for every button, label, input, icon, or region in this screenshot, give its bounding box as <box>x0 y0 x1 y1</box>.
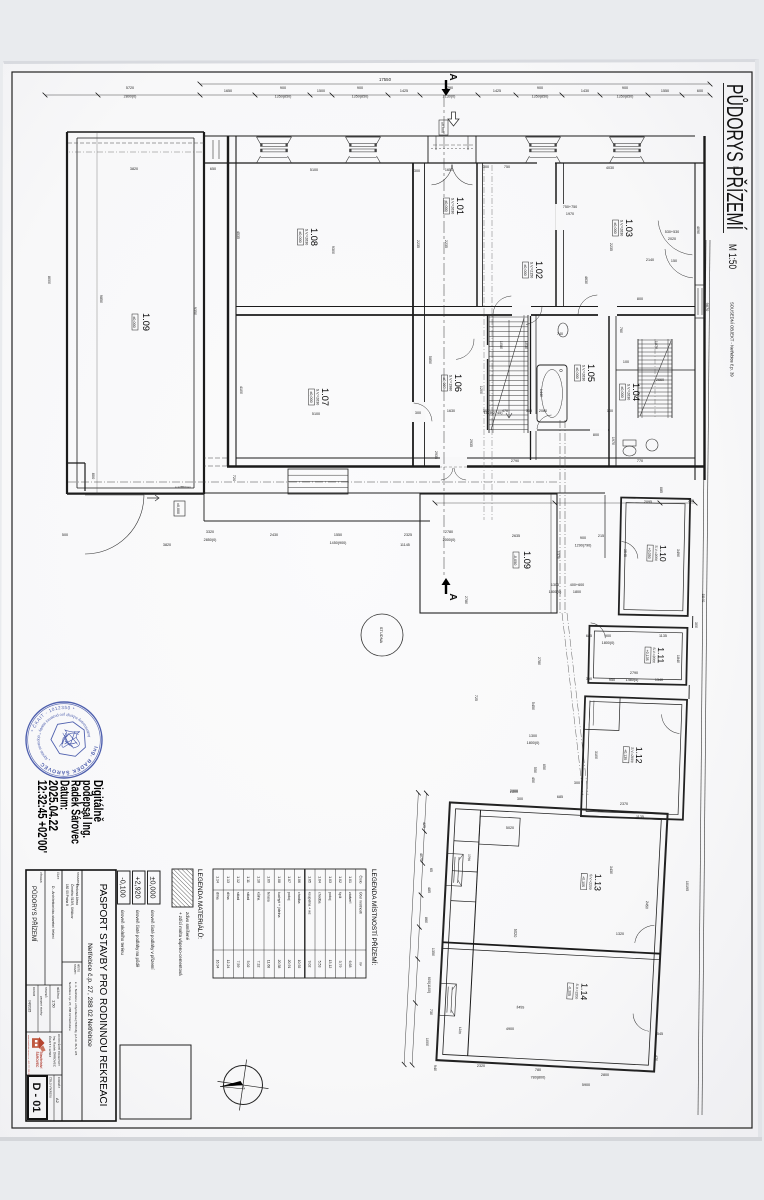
svg-text:kuchyň + jídelna: kuchyň + jídelna <box>277 892 281 917</box>
svg-text:900: 900 <box>280 86 286 90</box>
svg-text:koupelna + wc: koupelna + wc <box>307 892 311 915</box>
svg-text:±0,000: ±0,000 <box>620 386 624 398</box>
svg-text:3820: 3820 <box>130 167 138 171</box>
svg-text:S.V.=2000: S.V.=2000 <box>654 545 658 561</box>
svg-text:1.12: 1.12 <box>236 876 240 883</box>
svg-text:1030: 1030 <box>524 341 528 349</box>
svg-text:±0,000: ±0,000 <box>444 200 448 212</box>
svg-text:600(1100): 600(1100) <box>427 977 431 994</box>
svg-text:1350(850): 1350(850) <box>275 95 292 99</box>
svg-text:-0,105: -0,105 <box>567 986 572 996</box>
svg-text:3490: 3490 <box>676 549 680 557</box>
svg-text:740: 740 <box>557 332 563 336</box>
svg-text:1650: 1650 <box>224 89 232 93</box>
svg-text:7,32: 7,32 <box>256 961 260 968</box>
svg-text:6,68: 6,68 <box>348 961 352 968</box>
svg-text:350: 350 <box>526 409 532 413</box>
svg-text:Černého 515/9, Střížkov: Černého 515/9, Střížkov <box>70 884 75 919</box>
svg-text:4900: 4900 <box>506 1027 514 1031</box>
svg-text:450: 450 <box>531 777 535 783</box>
svg-text:+ zdící malta vápeno-cementová: + zdící malta vápeno-cementová <box>178 912 183 976</box>
svg-text:1.12: 1.12 <box>634 747 645 764</box>
svg-text:1.02: 1.02 <box>534 261 544 279</box>
svg-text:1.03: 1.03 <box>624 219 634 237</box>
svg-text:PŮDORYS PŘÍZEMÍ: PŮDORYS PŘÍZEMÍ <box>30 886 38 942</box>
svg-text:17550: 17550 <box>379 77 392 82</box>
svg-text:1.05: 1.05 <box>586 364 596 382</box>
svg-text:2320: 2320 <box>477 1064 485 1068</box>
svg-text:1800: 1800 <box>573 590 581 594</box>
svg-text:±0,000: ±0,000 <box>613 222 617 234</box>
svg-text:1350: 1350 <box>431 948 435 956</box>
svg-text:dílna: dílna <box>216 892 220 900</box>
svg-text:1500: 1500 <box>317 89 325 93</box>
svg-text:±0,000: ±0,000 <box>523 264 527 276</box>
svg-text:2130(0): 2130(0) <box>443 95 456 99</box>
svg-text:dílna: dílna <box>226 892 230 900</box>
svg-text:1540: 1540 <box>655 678 663 682</box>
svg-text:pasport stavby: pasport stavby <box>40 996 44 1016</box>
svg-text:1.07: 1.07 <box>287 876 291 883</box>
svg-text:1970: 1970 <box>566 212 574 216</box>
svg-text:2450: 2450 <box>645 901 649 909</box>
svg-text:1350(850): 1350(850) <box>532 95 549 99</box>
svg-text:úroveň čisté podlahy na půdě: úroveň čisté podlahy na půdě <box>135 910 140 968</box>
svg-text:±0,000: ±0,000 <box>149 877 158 899</box>
svg-text:1.11: 1.11 <box>656 647 666 664</box>
svg-text:4100: 4100 <box>239 386 243 394</box>
svg-text:A: A <box>447 593 458 600</box>
svg-text:780: 780 <box>535 1068 541 1072</box>
svg-text:Ing. Radek ŠÁROVEC: Ing. Radek ŠÁROVEC <box>53 1036 58 1068</box>
svg-text:1440: 1440 <box>539 389 543 397</box>
svg-text:2020: 2020 <box>668 237 676 241</box>
svg-text:STAVBY:: STAVBY: <box>73 964 77 975</box>
svg-text:3,79: 3,79 <box>338 961 342 968</box>
svg-text:±0,000: ±0,000 <box>176 503 180 514</box>
svg-text:300: 300 <box>694 622 698 628</box>
svg-text:300: 300 <box>415 411 421 415</box>
svg-text:800: 800 <box>91 473 96 480</box>
svg-text:D - Architektonicko-stavební ř: D - Architektonicko-stavební řešení <box>51 886 55 939</box>
svg-text:MÍSTO: MÍSTO <box>77 964 81 972</box>
svg-text:chodba: chodba <box>318 892 322 904</box>
svg-text:9350: 9350 <box>193 307 197 315</box>
svg-text:300: 300 <box>414 169 420 173</box>
svg-text:900: 900 <box>537 86 543 90</box>
svg-text:Lenková Alena: Lenková Alena <box>75 884 79 905</box>
svg-text:9870: 9870 <box>705 303 710 312</box>
svg-text:1425: 1425 <box>493 89 501 93</box>
svg-text:1870: 1870 <box>654 341 658 349</box>
svg-text:1.03: 1.03 <box>328 876 332 883</box>
svg-text:1220: 1220 <box>458 1027 462 1035</box>
svg-text:800: 800 <box>593 433 599 437</box>
svg-text:2235: 2235 <box>609 243 613 251</box>
svg-text:750: 750 <box>504 165 510 169</box>
svg-text:±0,000: ±0,000 <box>575 367 579 379</box>
svg-text:S.V.=2630: S.V.=2630 <box>582 365 586 382</box>
svg-text:2660: 2660 <box>656 378 664 382</box>
svg-text:1.13: 1.13 <box>226 876 230 883</box>
svg-text:S.V.=2200: S.V.=2200 <box>574 983 579 999</box>
svg-text:5020: 5020 <box>506 826 514 830</box>
svg-text:FORMÁT: FORMÁT <box>57 1077 61 1088</box>
svg-text:sklad: sklad <box>236 892 240 900</box>
svg-text:3100: 3100 <box>594 751 598 759</box>
svg-text:3320: 3320 <box>206 530 214 534</box>
svg-text:1650: 1650 <box>445 168 453 172</box>
svg-text:1.08: 1.08 <box>309 228 319 246</box>
svg-text:2800(0): 2800(0) <box>124 95 137 99</box>
svg-text:900: 900 <box>580 536 586 540</box>
svg-text:13,12: 13,12 <box>328 960 332 969</box>
svg-text:150: 150 <box>671 259 677 263</box>
svg-text:900: 900 <box>622 86 628 90</box>
svg-text:M 1:50: M 1:50 <box>726 244 738 269</box>
svg-text:550: 550 <box>533 767 537 773</box>
svg-text:1430: 1430 <box>581 89 589 93</box>
svg-text:1800(0): 1800(0) <box>527 741 540 745</box>
svg-text:1.06: 1.06 <box>453 374 463 392</box>
svg-text:+0,135: +0,135 <box>645 649 649 660</box>
svg-text:2780: 2780 <box>537 657 541 665</box>
svg-text:s.=2850mm: s.=2850mm <box>175 485 191 489</box>
svg-text:730: 730 <box>429 1009 433 1015</box>
svg-text:2800: 2800 <box>510 790 518 794</box>
svg-text:215: 215 <box>598 534 604 538</box>
svg-text:zdivo smíšené: zdivo smíšené <box>185 912 190 941</box>
svg-text:1.10: 1.10 <box>658 545 668 562</box>
svg-text:2000(0): 2000(0) <box>443 538 456 542</box>
svg-text:1550: 1550 <box>661 89 669 93</box>
svg-text:1.14: 1.14 <box>216 876 220 883</box>
svg-text:sklad: sklad <box>246 892 250 900</box>
svg-text:720: 720 <box>232 475 237 482</box>
svg-text:940: 940 <box>433 1065 437 1071</box>
svg-text:ŠÁROVEC: ŠÁROVEC <box>35 1052 40 1068</box>
svg-text:1135: 1135 <box>659 634 667 638</box>
svg-text:±0,000: ±0,000 <box>298 231 302 243</box>
svg-text:pokoj: pokoj <box>287 892 291 901</box>
svg-text:5450: 5450 <box>531 702 535 710</box>
svg-text:+2,920: +2,920 <box>134 876 143 898</box>
svg-text:www.stavitelstvi-sarovec.cz +: www.stavitelstvi-sarovec.cz +420 777 000… <box>27 1035 30 1077</box>
svg-text:5100: 5100 <box>310 168 318 172</box>
svg-text:1.11: 1.11 <box>246 876 250 883</box>
svg-text:PASPORT STAVBY PRO RODINNOU RE: PASPORT STAVBY PRO RODINNOU REKREACI <box>97 884 108 1107</box>
svg-text:1425: 1425 <box>400 89 408 93</box>
svg-text:300: 300 <box>483 165 489 169</box>
svg-text:65: 65 <box>429 868 433 872</box>
svg-text:8000: 8000 <box>47 276 51 284</box>
svg-text:VÝKRES:: VÝKRES: <box>39 872 43 884</box>
svg-text:Číslo: Číslo <box>358 876 363 884</box>
svg-text:500: 500 <box>62 533 68 537</box>
svg-text:725: 725 <box>474 695 478 701</box>
svg-text:D - 01: D - 01 <box>30 1083 42 1113</box>
svg-text:485: 485 <box>427 887 431 893</box>
svg-text:±0,000: ±0,000 <box>309 391 313 403</box>
svg-text:5,53: 5,53 <box>318 961 322 968</box>
svg-text:20,91: 20,91 <box>287 960 291 969</box>
svg-text:1.13: 1.13 <box>592 874 603 892</box>
svg-text:2430: 2430 <box>270 533 278 537</box>
svg-text:4535: 4535 <box>236 231 240 239</box>
svg-text:3820: 3820 <box>163 543 171 547</box>
svg-text:2235: 2235 <box>444 240 448 248</box>
svg-text:1.10: 1.10 <box>256 876 260 883</box>
svg-text:úroveň čisté podlahy v přízemí: úroveň čisté podlahy v přízemí <box>150 910 155 970</box>
svg-text:04/2025: 04/2025 <box>28 1000 32 1012</box>
svg-text:1.04: 1.04 <box>318 876 322 883</box>
svg-text:1970: 1970 <box>611 437 615 445</box>
svg-text:1:50: 1:50 <box>52 1000 57 1009</box>
svg-text:5720: 5720 <box>126 86 134 90</box>
svg-text:1525(2745): 1525(2745) <box>484 411 503 415</box>
svg-text:1750: 1750 <box>467 854 471 862</box>
svg-text:2780: 2780 <box>464 596 468 604</box>
svg-text:PŮDORYS PŘÍZEMÍ: PŮDORYS PŘÍZEMÍ <box>722 84 750 230</box>
svg-text:860: 860 <box>424 917 428 923</box>
svg-text:11,68: 11,68 <box>267 960 271 969</box>
svg-text:1290(790): 1290(790) <box>575 544 592 548</box>
svg-text:1.01: 1.01 <box>348 876 352 883</box>
svg-text:470: 470 <box>502 409 508 413</box>
svg-text:1.05: 1.05 <box>307 876 311 883</box>
svg-text:400+600: 400+600 <box>570 583 584 587</box>
svg-text:9300: 9300 <box>331 246 335 254</box>
svg-text:Netřebice č.p. 27, 288 02 Netř: Netřebice č.p. 27, 288 02 Netřebice <box>68 982 72 1031</box>
svg-text:1350(850): 1350(850) <box>352 95 369 99</box>
svg-text:1.14: 1.14 <box>579 983 590 1001</box>
svg-text:2325: 2325 <box>404 533 412 537</box>
svg-text:5840: 5840 <box>701 594 706 603</box>
svg-text:1840: 1840 <box>676 655 680 663</box>
svg-text:1800(0): 1800(0) <box>549 590 562 594</box>
svg-text:750+750: 750+750 <box>563 205 577 209</box>
svg-text:1.01: 1.01 <box>455 197 465 215</box>
svg-text:800: 800 <box>637 297 643 301</box>
svg-text:650: 650 <box>542 764 546 770</box>
svg-text:12,24: 12,24 <box>226 960 230 969</box>
svg-text:pokoj: pokoj <box>328 892 332 901</box>
svg-text:9850: 9850 <box>99 295 103 303</box>
svg-text:SOUSEDNÍ OBJEKT - Netřebice: SOUSEDNÍ OBJEKT - Netřebice č.p. 39 <box>730 302 735 377</box>
svg-text:1.06: 1.06 <box>297 876 301 883</box>
svg-text:1450(900): 1450(900) <box>330 541 347 545</box>
svg-text:terasa: terasa <box>267 892 271 902</box>
svg-text:5020: 5020 <box>513 929 517 938</box>
svg-text:+0,105: +0,105 <box>581 876 586 887</box>
svg-text:1300: 1300 <box>529 734 537 738</box>
svg-text:2080: 2080 <box>539 409 547 413</box>
svg-text:2780: 2780 <box>445 530 453 534</box>
svg-text:1320: 1320 <box>616 932 624 936</box>
svg-text:300: 300 <box>517 797 523 801</box>
svg-text:5850: 5850 <box>428 356 432 364</box>
svg-text:685: 685 <box>557 795 563 799</box>
svg-text:9,02: 9,02 <box>307 961 311 968</box>
svg-text:530+530: 530+530 <box>665 230 679 234</box>
svg-text:600: 600 <box>697 89 703 93</box>
svg-text:10,92: 10,92 <box>297 960 301 969</box>
svg-text:11145: 11145 <box>400 543 410 547</box>
svg-text:kůlna: kůlna <box>256 892 260 900</box>
svg-text:12:32:45 +02'00': 12:32:45 +02'00' <box>35 780 49 853</box>
svg-text:k. ú. Netřebice u Nymburka [7: k. ú. Netřebice u Nymburka [704016], p.č… <box>74 982 78 1056</box>
svg-text:16,94: 16,94 <box>216 960 220 969</box>
svg-text:S.V.=2150: S.V.=2150 <box>530 262 534 279</box>
svg-text:300: 300 <box>574 781 580 785</box>
svg-text:100: 100 <box>623 360 629 364</box>
svg-text:S.V.=1980: S.V.=1980 <box>449 375 453 392</box>
svg-text:4030: 4030 <box>606 166 614 170</box>
svg-text:1.08: 1.08 <box>277 876 281 883</box>
svg-text:DATUM: DATUM <box>32 987 36 996</box>
svg-text:STUDNA: STUDNA <box>379 627 384 644</box>
svg-text:2850(0): 2850(0) <box>204 538 217 542</box>
svg-text:2635: 2635 <box>512 534 520 538</box>
svg-text:S.V.=2630: S.V.=2630 <box>451 198 455 215</box>
svg-text:1200: 1200 <box>479 386 483 394</box>
svg-text:650: 650 <box>210 167 216 171</box>
svg-text:425: 425 <box>422 822 426 828</box>
svg-text:zádveří: zádveří <box>348 892 352 904</box>
svg-text:LEGENDA MATERIÁLŮ:: LEGENDA MATERIÁLŮ: <box>196 869 205 939</box>
svg-text:2140: 2140 <box>646 258 654 262</box>
svg-text:1.04: 1.04 <box>631 383 641 401</box>
svg-text:S.V.=2000: S.V.=2000 <box>630 747 635 763</box>
svg-text:2370: 2370 <box>620 802 628 806</box>
svg-text:Netřebice č.p. 27, 288 02 Netř: Netřebice č.p. 27, 288 02 Netřebice <box>86 943 93 1047</box>
svg-text:182 00 Praha 8: 182 00 Praha 8 <box>65 884 69 906</box>
svg-text:+0,135: +0,135 <box>623 749 627 760</box>
svg-text:20,58: 20,58 <box>277 960 281 969</box>
svg-text:-0,050: -0,050 <box>513 555 517 566</box>
svg-text:1.07: 1.07 <box>320 388 330 406</box>
svg-text:±0,000: ±0,000 <box>132 316 136 328</box>
svg-text:2790: 2790 <box>511 459 519 463</box>
svg-text:7,59: 7,59 <box>236 961 240 968</box>
svg-text:1550: 1550 <box>334 533 342 537</box>
svg-text:S.V.=2200: S.V.=2200 <box>588 874 593 890</box>
svg-text:4630: 4630 <box>584 276 588 284</box>
svg-text:1800(0): 1800(0) <box>602 641 615 645</box>
svg-text:2935: 2935 <box>469 439 473 447</box>
svg-text:-0,100: -0,100 <box>119 877 128 897</box>
svg-text:3455: 3455 <box>516 1005 524 1009</box>
svg-text:+0,050: +0,050 <box>647 548 651 559</box>
svg-text:5,02: 5,02 <box>246 961 250 968</box>
svg-text:3430: 3430 <box>609 866 613 874</box>
svg-text:1080: 1080 <box>499 341 503 349</box>
svg-text:2935: 2935 <box>434 451 438 459</box>
svg-text:4075: 4075 <box>419 853 423 861</box>
svg-text:ČKAIT č.12363: ČKAIT č.12363 <box>48 1036 53 1057</box>
svg-text:780(800): 780(800) <box>531 1076 546 1080</box>
svg-text:LEGENDA MÍSTNOSTÍ PŘÍZEMÍ:: LEGENDA MÍSTNOSTÍ PŘÍZEMÍ: <box>370 869 379 965</box>
svg-text:100: 100 <box>607 409 613 413</box>
svg-text:2800: 2800 <box>601 1073 609 1077</box>
svg-text:S.V.=2000: S.V.=2000 <box>652 647 656 663</box>
svg-text:10195: 10195 <box>685 881 689 891</box>
svg-text:1.02: 1.02 <box>338 876 342 883</box>
svg-text:1.09: 1.09 <box>522 551 532 569</box>
svg-text:1300: 1300 <box>551 583 559 587</box>
svg-text:A2: A2 <box>55 1098 60 1104</box>
svg-text:chodba: chodba <box>297 892 301 904</box>
svg-text:A: A <box>447 73 458 80</box>
svg-text:1630: 1630 <box>447 409 455 413</box>
svg-text:špíž: špíž <box>338 892 342 899</box>
svg-text:1.09: 1.09 <box>141 313 151 331</box>
svg-text:Účel místnosti: Účel místnosti <box>358 892 362 914</box>
svg-text:S.V.=2630: S.V.=2630 <box>316 389 320 406</box>
svg-text:5900: 5900 <box>582 1083 590 1087</box>
svg-text:2790: 2790 <box>630 671 638 675</box>
svg-text:545: 545 <box>657 1032 663 1036</box>
svg-text:900: 900 <box>357 86 363 90</box>
svg-text:S.V.=2630: S.V.=2630 <box>627 384 631 401</box>
svg-text:685: 685 <box>659 487 663 493</box>
svg-text:5100: 5100 <box>312 412 320 416</box>
svg-text:1.09: 1.09 <box>267 876 271 883</box>
svg-text:770: 770 <box>637 459 643 463</box>
svg-text:735: 735 <box>733 166 739 170</box>
svg-text:760: 760 <box>619 327 623 333</box>
svg-text:úroveň okolního terénu: úroveň okolního terénu <box>120 910 125 955</box>
svg-text:S.V.=2630: S.V.=2630 <box>620 220 624 237</box>
svg-text:900: 900 <box>605 634 611 638</box>
svg-text:4090: 4090 <box>696 226 700 234</box>
svg-text:1000: 1000 <box>425 1038 429 1046</box>
svg-text:2235: 2235 <box>416 240 420 248</box>
svg-text:1350(850): 1350(850) <box>617 95 634 99</box>
svg-text:S.V.=2630: S.V.=2630 <box>305 229 309 246</box>
